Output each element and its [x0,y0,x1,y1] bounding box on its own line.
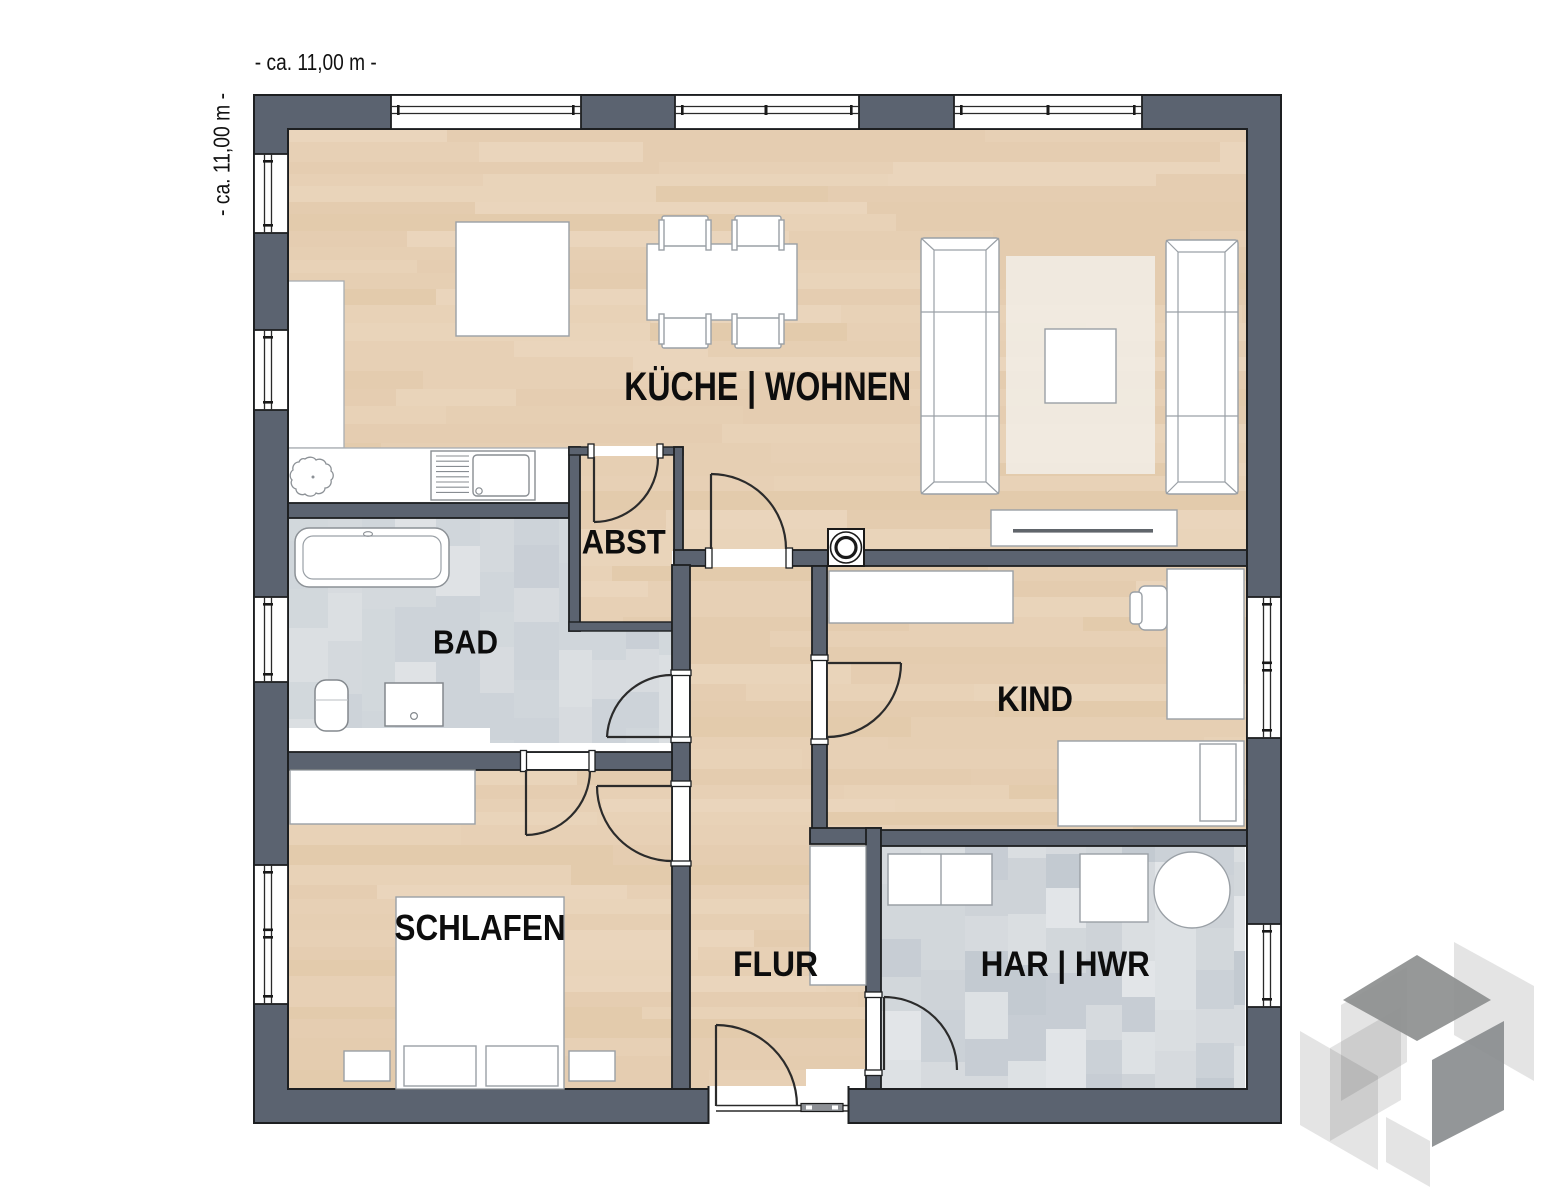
svg-text:ABST: ABST [582,524,666,562]
svg-text:SCHLAFEN: SCHLAFEN [395,907,566,948]
svg-text:FLUR: FLUR [733,945,818,984]
svg-text:BAD: BAD [433,624,498,661]
svg-text:HAR | HWR: HAR | HWR [981,945,1150,984]
svg-text:- ca. 11,00 m -: - ca. 11,00 m - [209,93,235,216]
svg-text:KIND: KIND [997,680,1073,719]
svg-text:- ca. 11,00 m -: - ca. 11,00 m - [255,49,377,75]
svg-text:KÜCHE | WOHNEN: KÜCHE | WOHNEN [624,364,911,409]
